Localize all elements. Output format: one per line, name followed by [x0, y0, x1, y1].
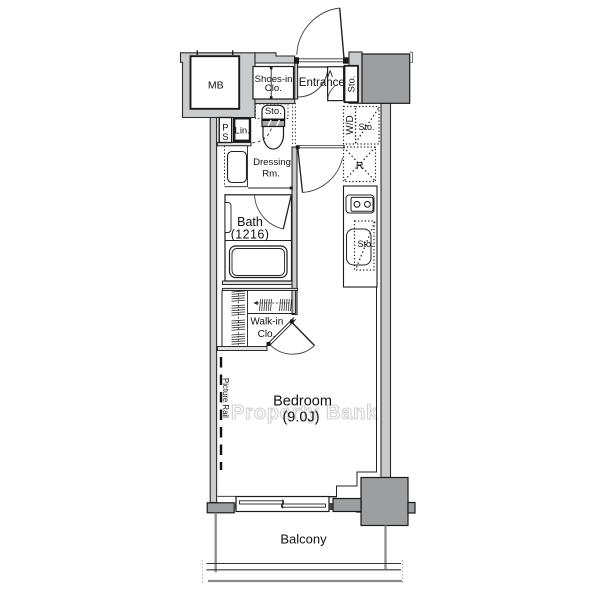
svg-text:Picture Rail: Picture Rail — [221, 378, 230, 418]
svg-text:Walk-in: Walk-in — [250, 317, 283, 328]
svg-text:Balcony: Balcony — [280, 532, 327, 547]
svg-text:(1216): (1216) — [231, 228, 270, 242]
svg-text:W/D: W/D — [345, 115, 356, 134]
svg-text:Rm.: Rm. — [262, 169, 280, 180]
svg-text:(9.0J): (9.0J) — [282, 410, 319, 426]
svg-text:MB: MB — [208, 80, 224, 92]
svg-text:Bedroom: Bedroom — [273, 394, 332, 410]
svg-text:Sto.: Sto. — [358, 122, 374, 132]
svg-text:Sto.: Sto. — [357, 239, 373, 249]
svg-text:S: S — [222, 132, 228, 143]
svg-text:Sto.: Sto. — [265, 106, 282, 117]
svg-text:Entrance: Entrance — [299, 77, 345, 89]
svg-text:Clo.: Clo. — [265, 83, 282, 94]
svg-text:R: R — [356, 160, 364, 172]
svg-text:Sto.: Sto. — [347, 76, 358, 93]
svg-text:Dressing: Dressing — [253, 157, 291, 168]
svg-text:Lin.: Lin. — [235, 126, 250, 137]
